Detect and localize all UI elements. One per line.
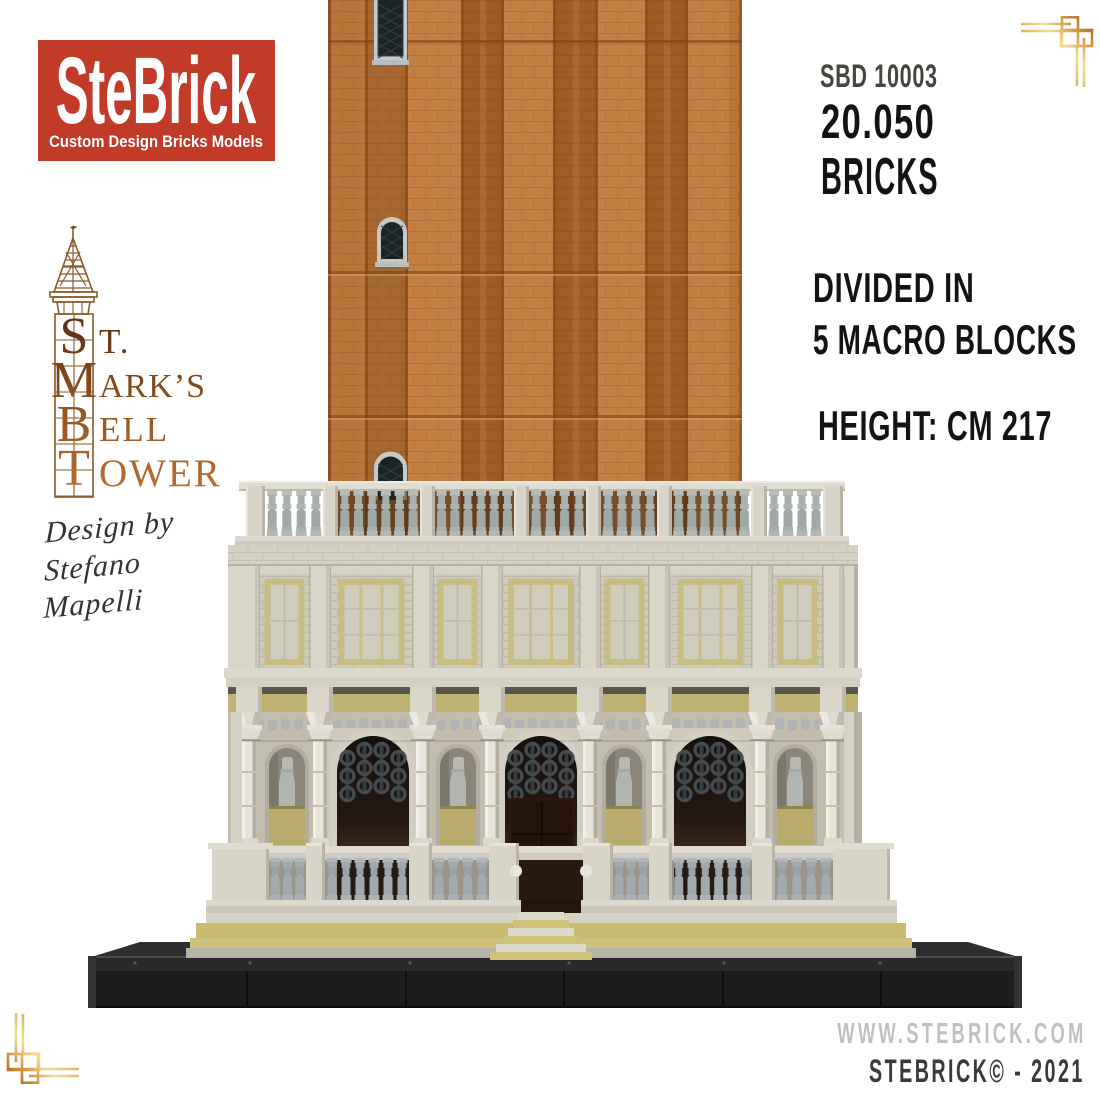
svg-text:T.: T. [99, 322, 131, 361]
svg-text:OWER: OWER [99, 452, 222, 495]
svg-text:T: T [58, 440, 90, 497]
svg-text:ELL: ELL [99, 410, 169, 449]
svg-text:ARK’S: ARK’S [99, 368, 206, 405]
